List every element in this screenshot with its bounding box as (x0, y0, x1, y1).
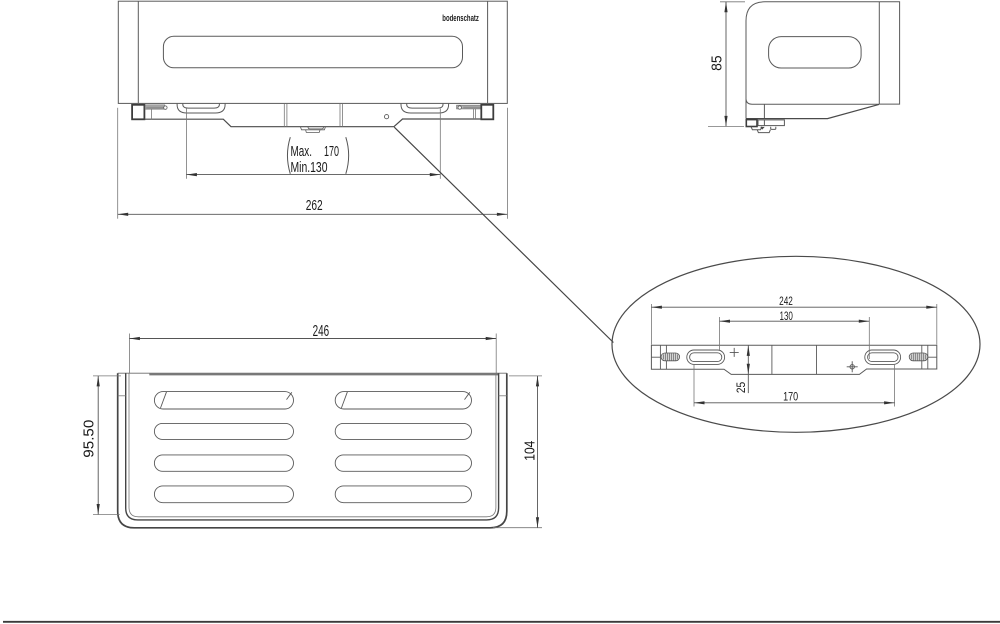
svg-text:bodenschatz: bodenschatz (442, 13, 479, 23)
svg-text:242: 242 (779, 294, 793, 308)
svg-text:170: 170 (783, 389, 798, 403)
svg-text:104: 104 (522, 441, 538, 461)
svg-text:170: 170 (324, 143, 339, 160)
svg-text:262: 262 (306, 198, 323, 214)
svg-text:85: 85 (710, 55, 726, 71)
svg-text:95.50: 95.50 (82, 420, 98, 458)
svg-text:25: 25 (734, 382, 748, 394)
svg-text:246: 246 (313, 323, 330, 340)
svg-text:130: 130 (780, 309, 794, 323)
svg-text:Min.130: Min.130 (291, 159, 328, 176)
svg-text:Max.: Max. (291, 143, 313, 160)
